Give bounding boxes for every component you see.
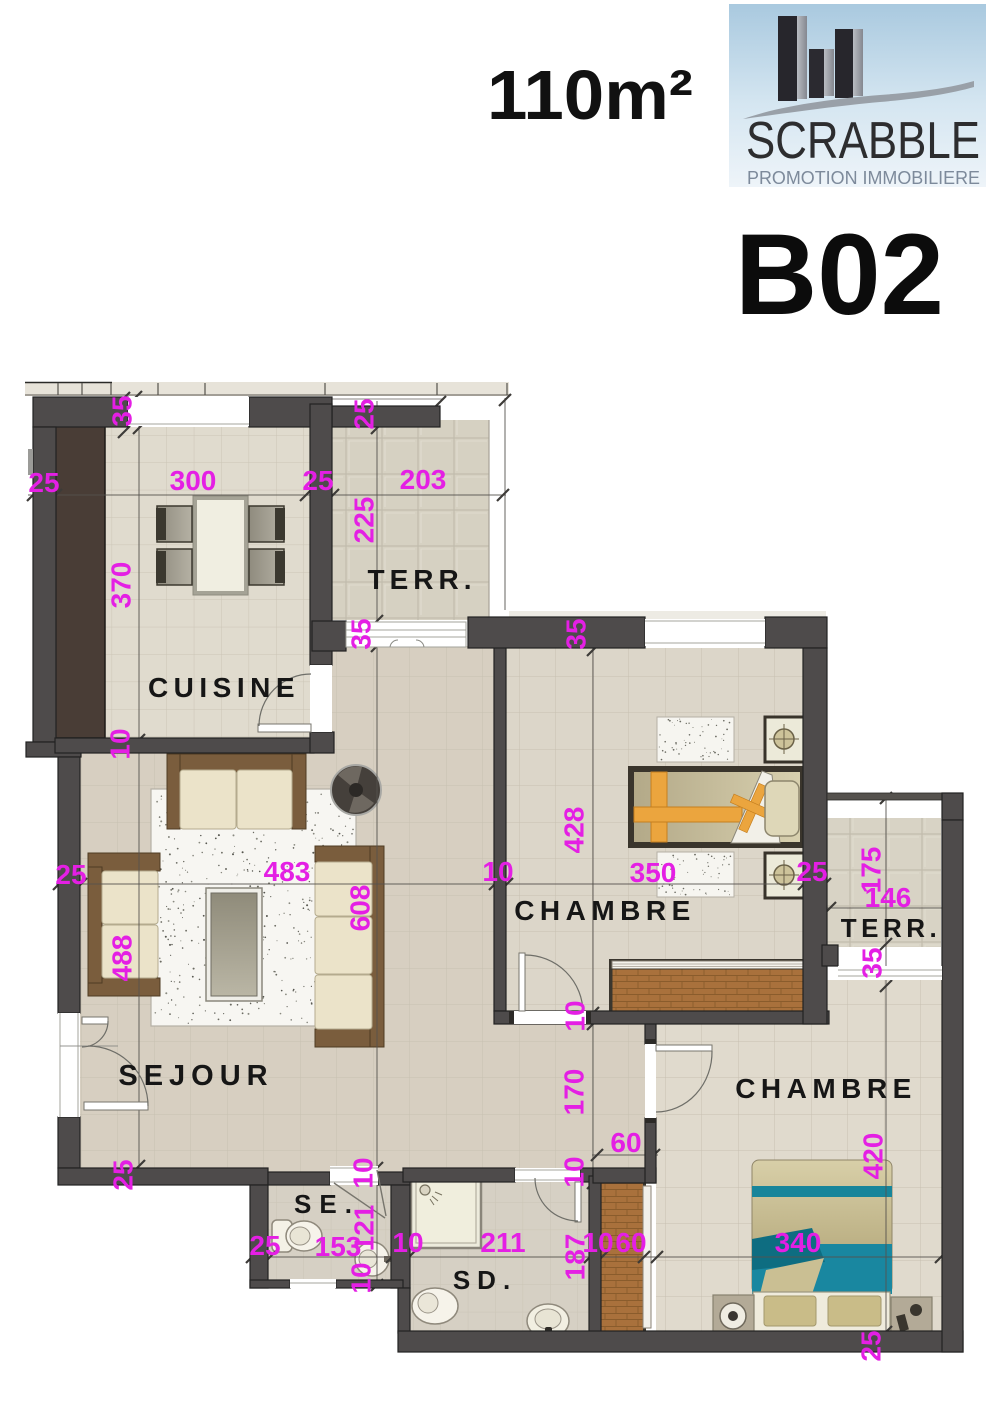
svg-text:25: 25: [348, 398, 379, 429]
svg-text:370: 370: [105, 562, 136, 609]
svg-text:TERR.: TERR.: [841, 913, 942, 943]
svg-text:60: 60: [610, 1127, 641, 1158]
svg-text:PROMOTION IMMOBILIERE: PROMOTION IMMOBILIERE: [747, 167, 980, 188]
svg-text:170: 170: [558, 1069, 589, 1116]
svg-text:CHAMBRE: CHAMBRE: [735, 1073, 917, 1104]
svg-text:10: 10: [582, 1227, 613, 1258]
svg-text:CHAMBRE: CHAMBRE: [514, 895, 696, 926]
svg-text:488: 488: [106, 935, 137, 982]
svg-text:110m²: 110m²: [487, 56, 693, 134]
svg-text:25: 25: [302, 465, 333, 496]
svg-text:121: 121: [348, 1205, 379, 1252]
svg-text:10: 10: [392, 1227, 423, 1258]
svg-text:TERR.: TERR.: [368, 564, 477, 595]
svg-text:10: 10: [347, 1157, 378, 1188]
svg-text:35: 35: [856, 947, 887, 978]
svg-text:203: 203: [400, 464, 447, 495]
svg-text:CUISINE: CUISINE: [148, 672, 300, 703]
svg-text:SCRABBLE: SCRABBLE: [746, 112, 980, 170]
svg-text:25: 25: [107, 1159, 138, 1190]
svg-text:211: 211: [480, 1227, 525, 1258]
svg-text:10: 10: [558, 1156, 589, 1187]
svg-text:35: 35: [106, 395, 137, 426]
svg-text:60: 60: [615, 1227, 646, 1258]
svg-text:35: 35: [345, 618, 376, 649]
svg-text:10: 10: [559, 1000, 590, 1031]
svg-text:420: 420: [857, 1133, 888, 1180]
svg-text:340: 340: [775, 1227, 822, 1258]
svg-text:350: 350: [630, 857, 677, 888]
svg-text:608: 608: [344, 885, 375, 932]
svg-text:25: 25: [28, 467, 59, 498]
svg-text:428: 428: [558, 807, 589, 854]
svg-text:25: 25: [855, 1330, 886, 1361]
svg-text:25: 25: [796, 856, 827, 887]
svg-text:10: 10: [482, 856, 513, 887]
svg-text:10: 10: [104, 728, 135, 759]
svg-text:300: 300: [170, 465, 217, 496]
svg-text:35: 35: [560, 618, 591, 649]
svg-text:B02: B02: [735, 211, 944, 339]
svg-text:225: 225: [348, 497, 379, 544]
svg-text:25: 25: [249, 1230, 280, 1261]
svg-text:SEJOUR: SEJOUR: [118, 1060, 273, 1092]
svg-text:146: 146: [865, 882, 912, 913]
svg-text:10: 10: [345, 1262, 376, 1293]
svg-text:483: 483: [264, 856, 311, 887]
svg-text:SD.: SD.: [453, 1265, 517, 1295]
svg-text:25: 25: [55, 859, 86, 890]
